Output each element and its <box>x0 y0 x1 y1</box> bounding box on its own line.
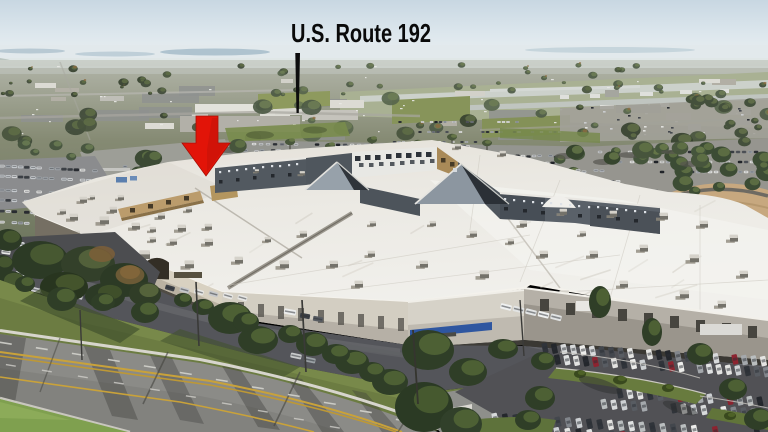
svg-text:U.S. Route 192: U.S. Route 192 <box>291 18 431 48</box>
